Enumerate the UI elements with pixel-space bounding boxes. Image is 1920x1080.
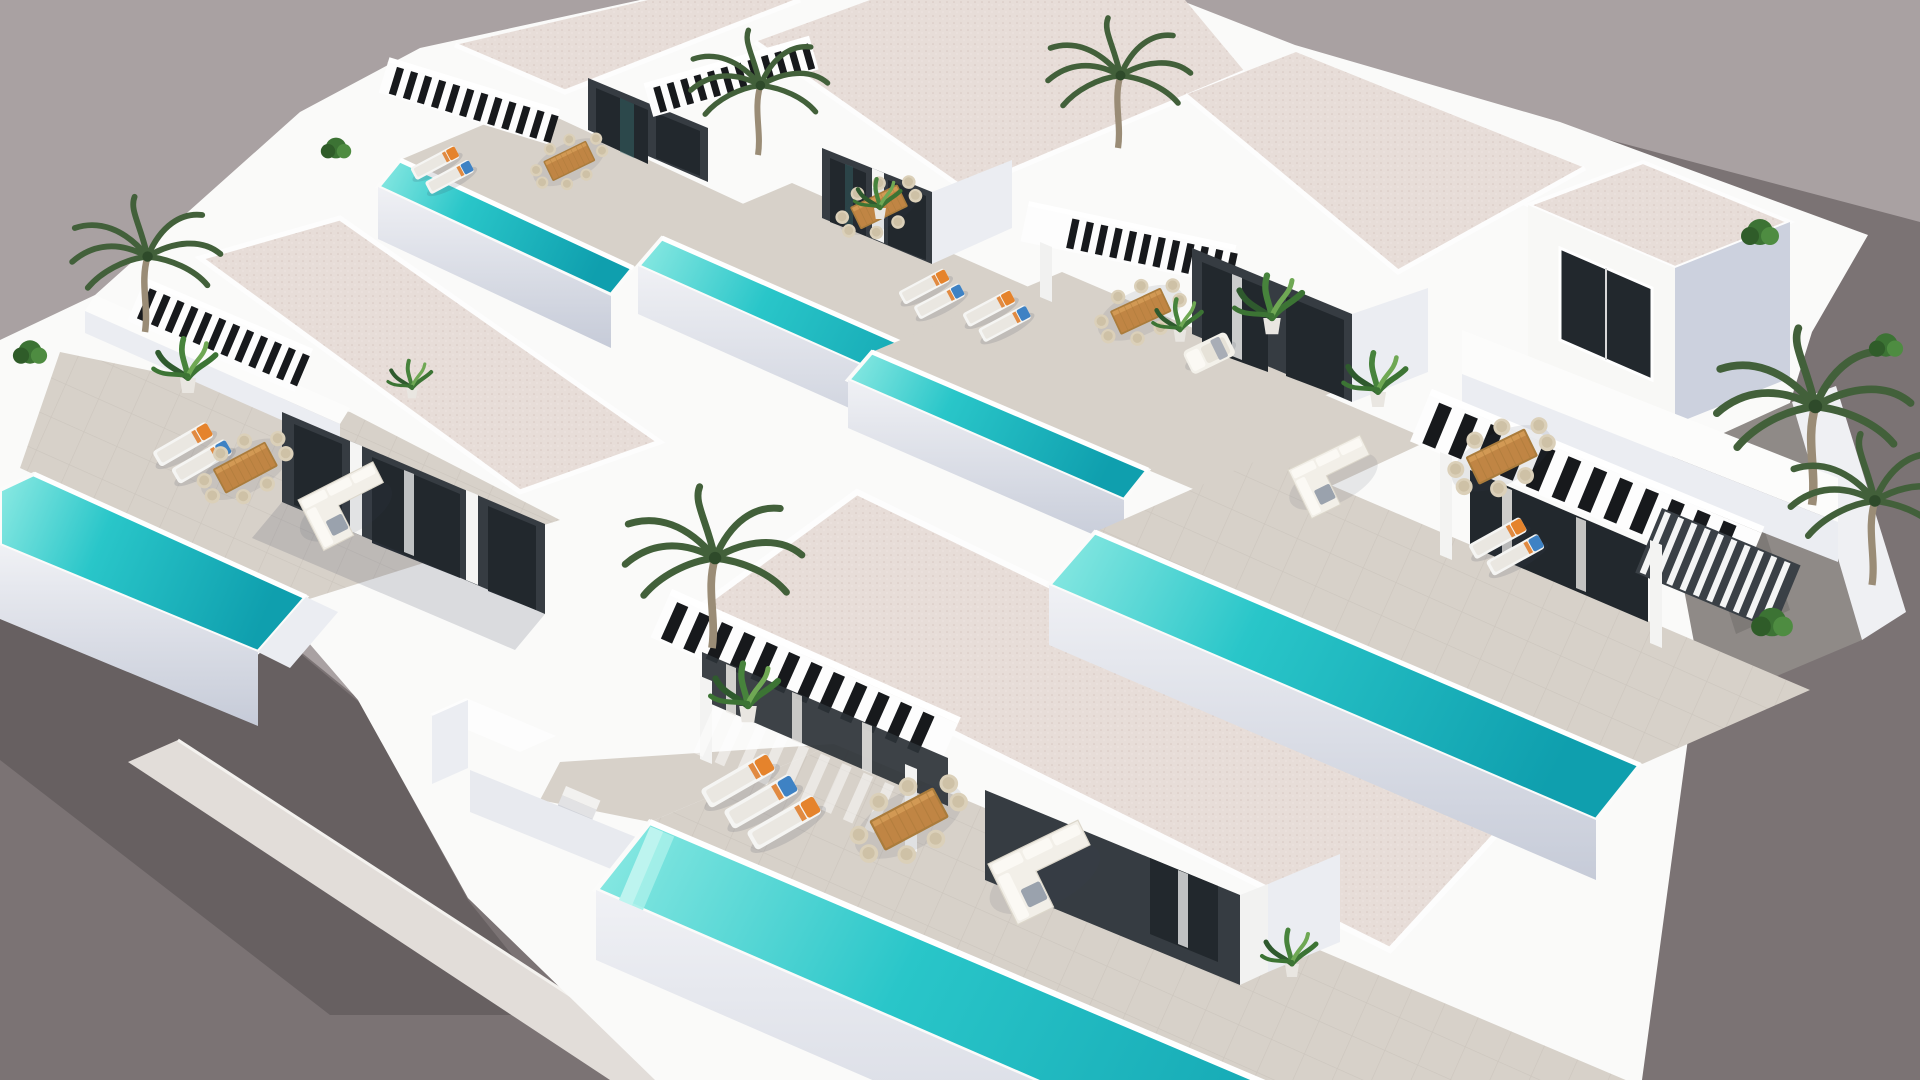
curtain — [1576, 517, 1586, 592]
render-stage — [0, 0, 1920, 1080]
curtain — [404, 470, 414, 556]
curtain — [792, 692, 802, 744]
pergola-column — [1650, 540, 1662, 648]
pergola-column — [1040, 242, 1052, 302]
glass-reflection — [620, 98, 634, 158]
facade-pillar — [466, 490, 478, 585]
facade-pillar — [1240, 884, 1268, 985]
curtain — [862, 722, 872, 774]
villa-development-render — [0, 0, 1920, 1080]
curtain — [1178, 870, 1188, 948]
